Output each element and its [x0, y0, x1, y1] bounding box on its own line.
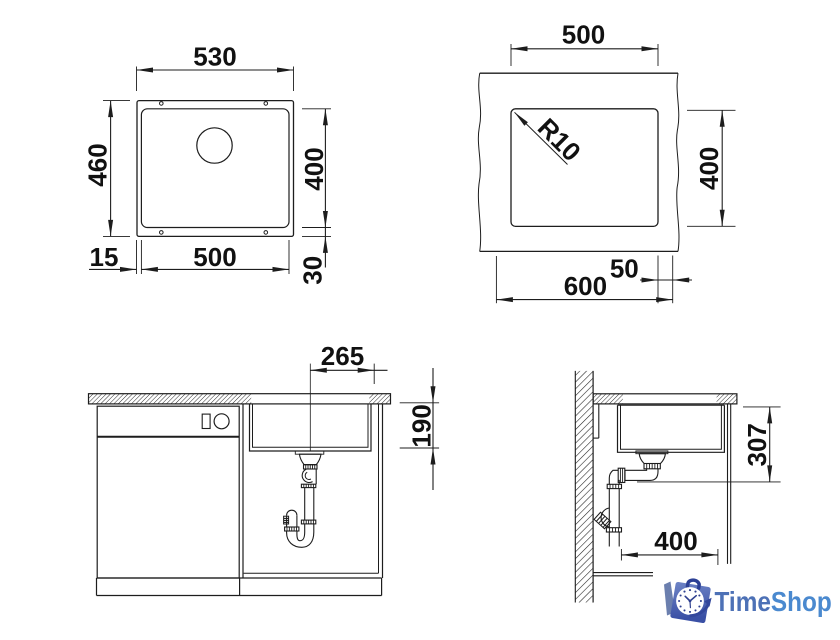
svg-text:400: 400 [654, 526, 697, 556]
svg-text:50: 50 [610, 253, 639, 283]
svg-text:600: 600 [564, 271, 607, 301]
svg-text:265: 265 [321, 341, 364, 371]
svg-text:15: 15 [90, 242, 119, 272]
svg-text:500: 500 [193, 242, 236, 272]
svg-text:190: 190 [406, 404, 436, 447]
svg-text:400: 400 [694, 147, 724, 190]
svg-text:30: 30 [297, 256, 327, 285]
svg-text:307: 307 [742, 423, 772, 466]
svg-text:530: 530 [193, 42, 236, 72]
svg-text:TimeShop: TimeShop [715, 585, 832, 617]
svg-text:460: 460 [83, 143, 113, 186]
svg-text:400: 400 [299, 147, 329, 190]
svg-text:500: 500 [562, 19, 605, 49]
